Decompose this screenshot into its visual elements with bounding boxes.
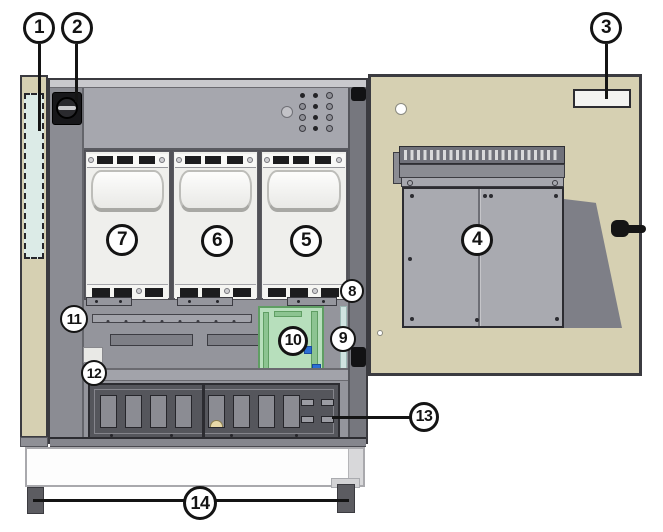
callout-2: 2: [61, 12, 93, 44]
busbar-slot: [110, 334, 193, 346]
module-label-tag: [97, 156, 113, 164]
callout-7: 7: [106, 224, 138, 256]
module-label-tag: [227, 156, 243, 164]
unit-sub-bar: [399, 164, 565, 178]
interior-left-column: [50, 88, 84, 442]
leader-line-3: [605, 44, 608, 99]
callout-10: 10: [278, 326, 308, 356]
breaker-slot: [100, 395, 117, 428]
callout-9-number: 9: [339, 330, 347, 348]
callout-5: 5: [290, 225, 322, 257]
callout-14: 14: [183, 486, 217, 520]
module-bracket: [287, 297, 337, 306]
door-hole: [395, 103, 407, 115]
module-label-tag: [205, 156, 221, 164]
module-top-strip: [87, 154, 168, 168]
callout-13: 13: [409, 402, 439, 432]
module-top-strip: [175, 154, 256, 168]
hinge-icon: [351, 347, 366, 367]
screw-icon: [136, 288, 142, 294]
hook-icon: [552, 180, 558, 186]
callout-3: 3: [590, 12, 622, 44]
breaker-slot: [283, 395, 300, 428]
module-handle: [267, 170, 341, 212]
breaker-slot: [125, 395, 142, 428]
module-label-tag: [290, 288, 308, 297]
side-panel-bottom: [20, 437, 48, 447]
module-label-tag: [202, 288, 220, 297]
cabinet-base: [25, 447, 365, 487]
callout-13-number: 13: [416, 408, 433, 426]
screw-icon: [247, 157, 253, 163]
module-label-tag: [145, 288, 163, 297]
panel-dot: [326, 92, 333, 99]
leader-line-2: [75, 44, 78, 102]
interior-cross-band: [84, 368, 348, 381]
callout-7-number: 7: [117, 229, 127, 251]
panel-dot: [326, 103, 333, 110]
screw-icon: [159, 157, 165, 163]
module-label-tag: [92, 288, 110, 297]
grommet: [210, 420, 223, 427]
module-label-tag: [139, 156, 155, 164]
panel-dot: [313, 93, 318, 98]
hook-icon: [407, 180, 413, 186]
module-handle: [179, 170, 252, 212]
panel-dot: [300, 93, 305, 98]
module-label-tag: [117, 156, 133, 164]
callout-4: 4: [461, 224, 493, 256]
cabinet-top-edge: [50, 80, 366, 88]
mounting-rail: [92, 314, 252, 323]
unit-mount-bracket: [401, 177, 564, 187]
breaker-slot: [150, 395, 167, 428]
module-handle: [91, 170, 164, 212]
screw-icon: [88, 157, 94, 163]
screw-icon: [224, 288, 230, 294]
aux-connector: [321, 399, 334, 406]
module-bracket: [86, 297, 132, 306]
callout-8: 8: [340, 279, 364, 303]
callout-6-number: 6: [212, 230, 222, 252]
callout-5-number: 5: [301, 230, 311, 252]
callout-9: 9: [330, 326, 356, 352]
callout-6: 6: [201, 225, 233, 257]
module-label-tag: [180, 288, 198, 297]
door-label-plate: [573, 89, 631, 108]
callout-8-number: 8: [348, 283, 356, 300]
side-filter-panel: [24, 93, 44, 259]
callout-4-number: 4: [472, 229, 482, 251]
aux-connector: [301, 416, 314, 423]
callout-12: 12: [81, 360, 107, 386]
module-top-strip: [263, 154, 345, 168]
callout-11-number: 11: [67, 311, 82, 328]
door-unit: [402, 187, 564, 328]
breaker-slot: [258, 395, 275, 428]
module-label-tag: [315, 156, 331, 164]
cabinet-bottom-strip: [50, 437, 366, 447]
panel-dot: [313, 104, 318, 109]
module-label-tag: [233, 288, 251, 297]
module-label-tag: [273, 156, 289, 164]
breaker-slot: [175, 395, 192, 428]
module-bracket: [177, 297, 233, 306]
module-label-tag: [185, 156, 201, 164]
panel-divider: [202, 385, 205, 439]
interior-right-frame: [348, 88, 366, 442]
callout-1-number: 1: [34, 17, 44, 39]
screw-icon: [264, 157, 270, 163]
screw-icon: [336, 157, 342, 163]
panel-dot: [313, 115, 318, 120]
panel-dot: [299, 103, 306, 110]
breaker-slot: [233, 395, 250, 428]
callout-10-number: 10: [285, 332, 302, 350]
module-label-tag: [321, 288, 339, 297]
leader-line-1: [38, 44, 41, 131]
callout-11: 11: [60, 305, 88, 333]
rotary-switch-handle: [58, 106, 76, 110]
screw-icon: [176, 157, 182, 163]
module-label-tag: [293, 156, 309, 164]
panel-emblem: [281, 106, 293, 118]
panel-dot: [313, 126, 318, 131]
callout-12-number: 12: [87, 365, 102, 381]
door-hole-small: [377, 330, 383, 336]
callout-2-number: 2: [72, 17, 82, 39]
hinge-icon: [351, 87, 366, 101]
door-handle-tongue: [627, 225, 646, 233]
callout-1: 1: [23, 12, 55, 44]
panel-dot: [326, 125, 333, 132]
callout-14-number: 14: [190, 493, 209, 514]
panel-dot: [299, 125, 306, 132]
panel-dot: [326, 114, 333, 121]
module-label-tag: [114, 288, 132, 297]
screw-icon: [312, 288, 318, 294]
interior-top-panel: [50, 88, 366, 150]
unit-vent-strip: [399, 146, 565, 164]
aux-connector: [301, 399, 314, 406]
callout-3-number: 3: [601, 17, 611, 39]
module-label-tag: [268, 288, 286, 297]
panel-dot: [299, 114, 306, 121]
leader-line-13: [332, 416, 410, 419]
diagram-stage: 1 2 3 4 5 6 7 8 9 10 11 12 13 14: [0, 0, 663, 532]
busbar-slot: [207, 334, 262, 346]
